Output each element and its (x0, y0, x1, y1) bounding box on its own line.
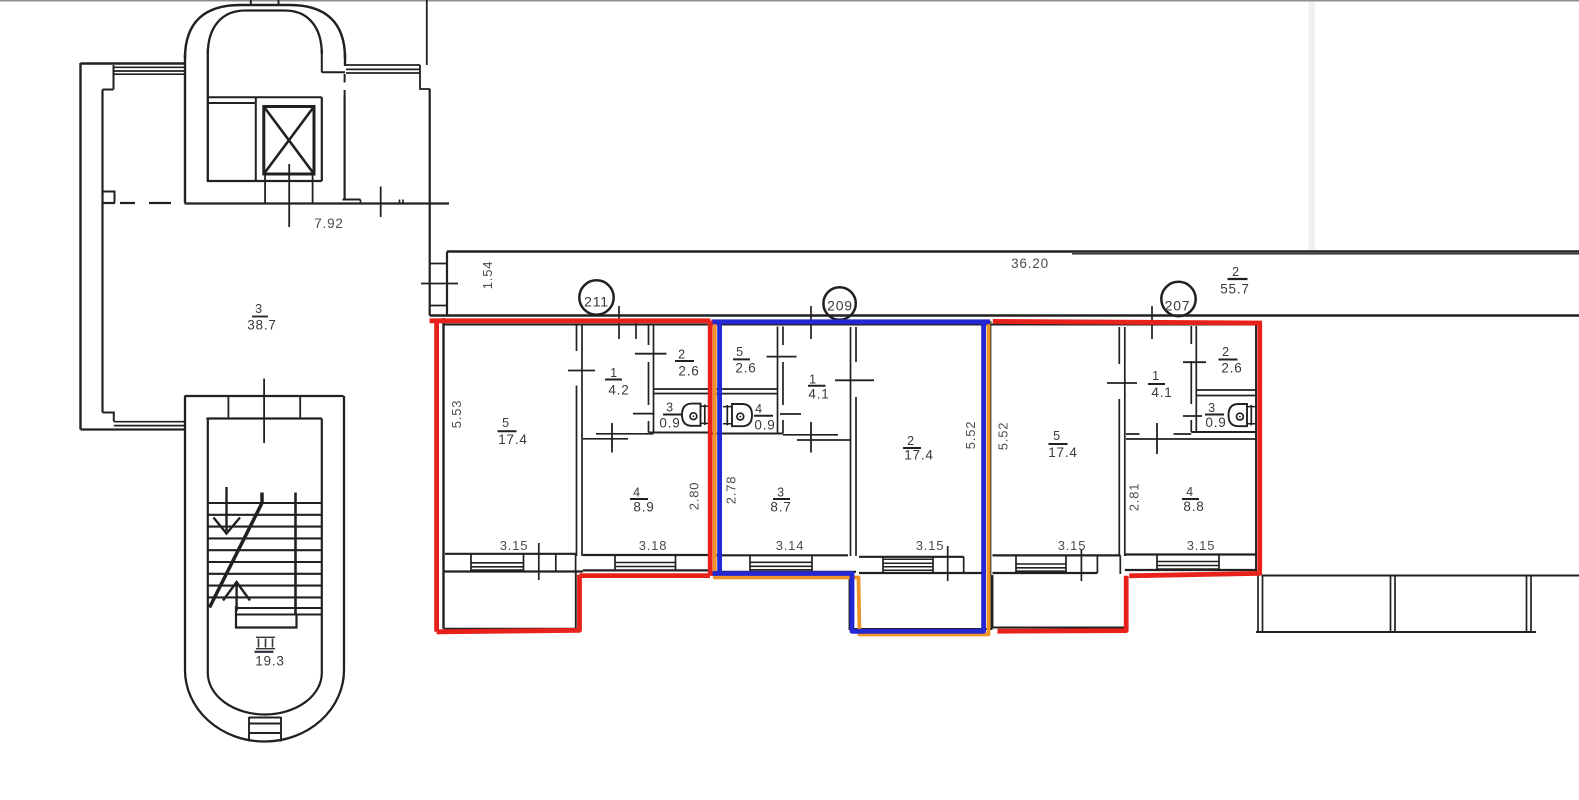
svg-text:2.6: 2.6 (735, 361, 756, 376)
svg-text:5: 5 (502, 416, 510, 430)
svg-text:19.3: 19.3 (255, 654, 284, 669)
svg-text:2: 2 (678, 348, 686, 362)
svg-text:4: 4 (755, 402, 763, 416)
svg-text:3.15: 3.15 (500, 538, 529, 553)
svg-text:209: 209 (827, 298, 853, 314)
svg-text:1: 1 (1152, 369, 1160, 383)
svg-text:2: 2 (907, 434, 915, 448)
svg-text:55.7: 55.7 (1220, 282, 1249, 297)
svg-text:3: 3 (1208, 401, 1216, 415)
svg-text:207: 207 (1165, 298, 1191, 314)
svg-text:4: 4 (1186, 485, 1194, 499)
svg-text:5.52: 5.52 (963, 421, 978, 450)
svg-text:211: 211 (584, 294, 609, 310)
svg-text:8.7: 8.7 (770, 500, 791, 515)
svg-text:2.6: 2.6 (1221, 361, 1242, 376)
svg-text:3: 3 (777, 486, 785, 500)
svg-text:4.1: 4.1 (1151, 385, 1172, 400)
svg-text:7.92: 7.92 (314, 216, 343, 231)
svg-text:8.8: 8.8 (1183, 499, 1204, 514)
svg-text:5.53: 5.53 (449, 400, 464, 429)
svg-text:2: 2 (1232, 265, 1240, 279)
svg-text:4.2: 4.2 (608, 383, 629, 398)
svg-text:8.9: 8.9 (633, 500, 654, 515)
svg-text:3.14: 3.14 (776, 538, 805, 553)
svg-text:4: 4 (633, 486, 641, 500)
svg-text:0.9: 0.9 (1205, 415, 1226, 430)
svg-text:3.15: 3.15 (916, 538, 945, 553)
svg-text:2.80: 2.80 (687, 482, 702, 511)
svg-text:17.4: 17.4 (1048, 445, 1077, 460)
svg-text:17.4: 17.4 (904, 448, 933, 463)
svg-text:2.78: 2.78 (724, 476, 739, 505)
svg-text:38.7: 38.7 (247, 318, 276, 333)
svg-text:17.4: 17.4 (498, 432, 527, 447)
svg-text:1.54: 1.54 (480, 261, 495, 290)
svg-text:3: 3 (666, 401, 674, 415)
svg-text:36.20: 36.20 (1011, 256, 1049, 271)
svg-text:2.81: 2.81 (1127, 483, 1142, 512)
svg-text:3.15: 3.15 (1058, 538, 1087, 553)
svg-text:3.18: 3.18 (639, 538, 668, 553)
svg-text:5: 5 (736, 345, 744, 359)
svg-text:5: 5 (1053, 429, 1061, 443)
svg-text:2: 2 (1222, 345, 1230, 359)
svg-text:3: 3 (255, 302, 263, 316)
svg-text:4.1: 4.1 (808, 387, 829, 402)
svg-text:5.52: 5.52 (996, 422, 1011, 451)
svg-text:1: 1 (809, 373, 817, 387)
svg-text:1: 1 (610, 366, 618, 380)
svg-text:2.6: 2.6 (678, 364, 699, 379)
svg-text:0.9: 0.9 (754, 418, 775, 433)
svg-text:3.15: 3.15 (1187, 538, 1216, 553)
svg-text:0.9: 0.9 (659, 416, 680, 431)
